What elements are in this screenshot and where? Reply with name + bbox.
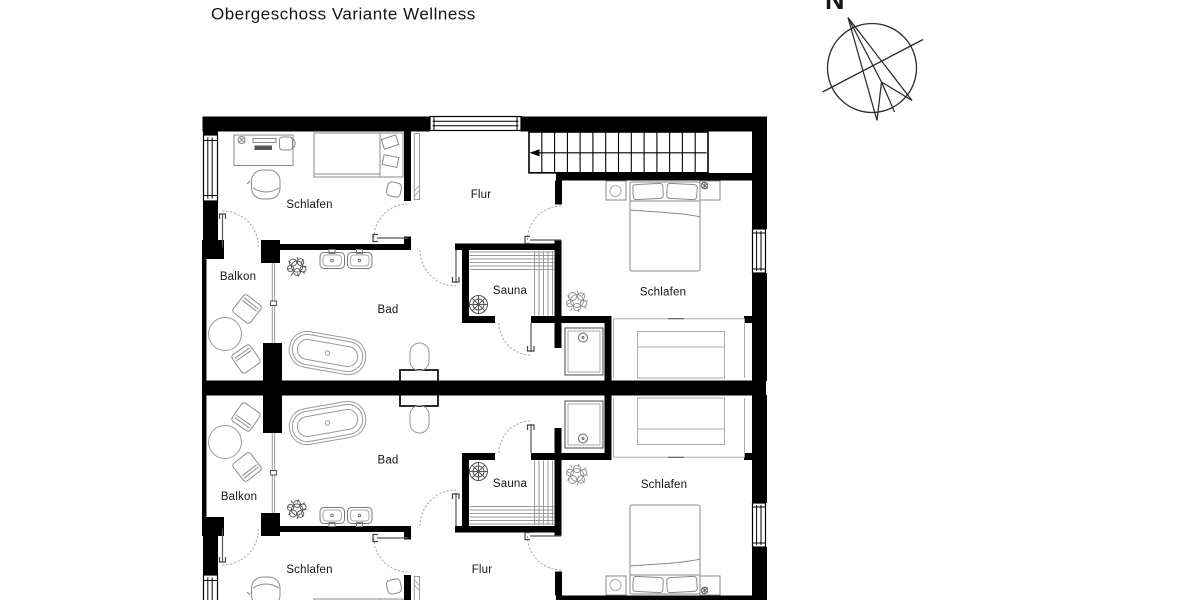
- svg-text:Obergeschoss Variante Wellness: Obergeschoss Variante Wellness: [211, 5, 476, 24]
- svg-text:Schlafen: Schlafen: [286, 199, 332, 211]
- svg-text:Flur: Flur: [472, 564, 493, 576]
- svg-text:Balkon: Balkon: [220, 271, 256, 283]
- svg-text:Sauna: Sauna: [493, 478, 528, 490]
- svg-text:Schlafen: Schlafen: [286, 564, 332, 576]
- svg-text:N: N: [825, 0, 845, 15]
- svg-text:Bad: Bad: [377, 455, 398, 467]
- svg-text:Schlafen: Schlafen: [640, 287, 686, 299]
- svg-text:Schlafen: Schlafen: [641, 479, 687, 491]
- svg-text:Balkon: Balkon: [221, 491, 257, 503]
- svg-text:Sauna: Sauna: [493, 285, 528, 297]
- svg-text:Bad: Bad: [377, 304, 398, 316]
- svg-text:Flur: Flur: [471, 189, 492, 201]
